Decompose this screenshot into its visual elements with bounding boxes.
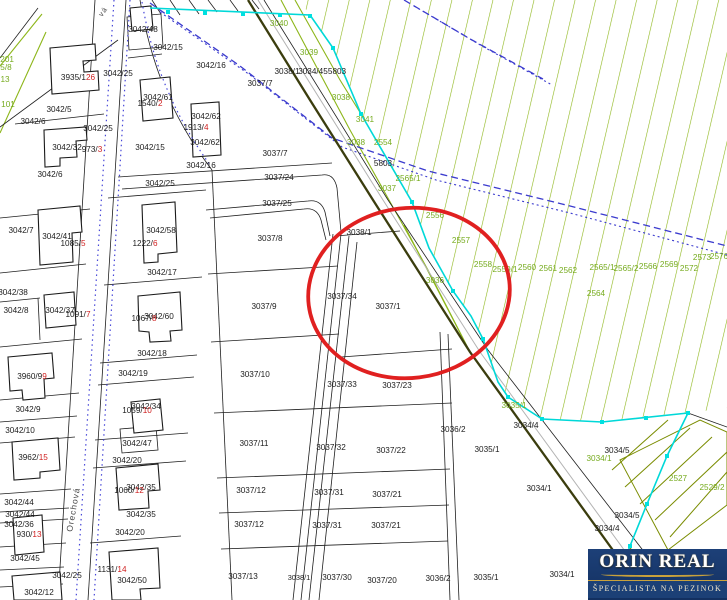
building-number-label: 1060/12 (114, 486, 144, 495)
forest-parcel-label: 2566 (639, 262, 658, 271)
building-number-label: 1131/14 (98, 565, 127, 574)
parcel-label: 3042/36 (4, 520, 34, 529)
parcel-label: 3034/1 (526, 484, 551, 493)
building-number-label: 1067/8 (131, 314, 157, 323)
building-number-label: 3962/15 (18, 453, 48, 462)
forest-parcel-label: 2529/2 (699, 483, 724, 492)
forest-parcel-label: 2565/1 (589, 263, 614, 272)
parcel-label: 3037/12 (236, 486, 266, 495)
parcel-label: 3037/23 (382, 381, 412, 390)
parcel-label: 3037/32 (316, 443, 346, 452)
forest-parcel-label: 2562 (559, 266, 578, 275)
forest-parcel-label: 2560 (518, 263, 537, 272)
parcel-label: 3042/44 (5, 510, 35, 519)
forest-parcel-label: 3036 (426, 276, 445, 285)
parcel-label: 3037/30 (322, 573, 352, 582)
parcel-label: 3042/19 (118, 369, 148, 378)
parcel-label: 3037/33 (327, 380, 357, 389)
parcel-label: 3034/5 (614, 511, 639, 520)
forest-parcel-label: 3040 (270, 19, 289, 28)
forest-parcel-label: 2558 (474, 260, 493, 269)
parcel-label: 3035/1 (473, 573, 498, 582)
parcel-label: 3042/50 (117, 576, 147, 585)
parcel-label: 3037/21 (371, 521, 401, 530)
forest-parcel-label: 2527 (669, 474, 688, 483)
parcel-label: 3042/5 (46, 105, 71, 114)
parcel-label: 3042/44 (4, 498, 34, 507)
logo-title: ORIN REAL (588, 549, 727, 575)
parcel-label: 3042/62 (190, 138, 220, 147)
forest-parcel-label: 2572 (680, 264, 699, 273)
parcel-label: 3042/6 (37, 170, 62, 179)
building-number-label: 1085/5 (60, 239, 86, 248)
parcel-label: 3042/17 (147, 268, 177, 277)
parcel-label: 3042/18 (137, 349, 167, 358)
parcel-label: 3037/11 (240, 439, 269, 448)
parcel-label: 3042/25 (103, 69, 133, 78)
building-number-label: 1091/7 (65, 310, 91, 319)
parcel-label: 3038/1 (288, 573, 311, 582)
forest-parcel-label: 3037 (378, 184, 397, 193)
parcel-label: 3042/9 (15, 405, 40, 414)
parcel-label: 3042/25 (52, 571, 82, 580)
forest-parcel-label: 2554 (374, 138, 393, 147)
parcel-label: 3042/6 (20, 117, 45, 126)
forest-parcel-label: 3039 (300, 48, 319, 57)
building-number-label: 1913/4 (183, 123, 209, 132)
parcel-label: 3042/16 (186, 161, 216, 170)
parcel-label: 3042/12 (24, 588, 54, 597)
building-number-label: 1059/10 (122, 406, 152, 415)
forest-parcel-label: 2565/2 (613, 264, 638, 273)
parcel-label: 3037/22 (376, 446, 406, 455)
parcel-label: 3037/9 (251, 302, 276, 311)
parcel-label: 3037/25 (262, 199, 292, 208)
building-footprints (8, 6, 221, 600)
forest-parcel-label: 5/8 (0, 63, 12, 72)
parcel-label: 3037/10 (240, 370, 270, 379)
parcel-label: 3037/7 (247, 79, 272, 88)
forest-parcel-label: 2576 (710, 252, 727, 261)
parcel-label: 3037/21 (372, 490, 402, 499)
parcel-label: 3034/1 (549, 570, 574, 579)
parcel-label: 3038/1 (274, 67, 299, 76)
forest-parcel-label: 3035/1 (501, 401, 526, 410)
forest-parcel-label: 3041 (356, 115, 375, 124)
building-number-label: 3935/126 (61, 73, 96, 82)
parcel-label: 3034/4 (513, 421, 538, 430)
building-number-label: 973/3 (82, 145, 103, 154)
orinreal-logo: ORIN REAL ŠPECIALISTA NA PEZINOK (588, 549, 727, 600)
building-number-label: 3960/99 (17, 372, 47, 381)
parcel-label: 3042/45 (10, 554, 40, 563)
forest-parcel-label: 13 (0, 75, 10, 84)
parcel-label: 3036/2 (425, 574, 450, 583)
parcel-label: 3037/20 (367, 576, 397, 585)
parcel-label: 3042/25 (145, 179, 175, 188)
forest-parcel-label: 3034/1 (586, 454, 611, 463)
parcel-label: 3036/2 (440, 425, 465, 434)
parcel-label: 3042/32 (52, 143, 82, 152)
parcel-label: 3042/8 (3, 306, 28, 315)
forest-parcel-label: 3038 (332, 93, 351, 102)
forest-parcel-label: 101 (1, 100, 15, 109)
parcel-label: 3037/34 (327, 292, 357, 301)
parcel-label: 3037/12 (234, 520, 264, 529)
parcel-label: 5803 (328, 67, 347, 76)
parcel-label: 3037/7 (262, 149, 287, 158)
parcel-label: 3042/20 (115, 528, 145, 537)
parcel-label: 3037/24 (264, 173, 294, 182)
forest-parcel-label: 3038 (347, 138, 366, 147)
street-name-label: vá (96, 5, 109, 18)
forest-parcel-label: 2561 (539, 264, 558, 273)
parcel-label: 3038/1 (346, 228, 371, 237)
forest-parcel-label: 2557 (452, 236, 471, 245)
parcel-label: 3037/13 (228, 572, 258, 581)
forest-parcel-label: 2565/1 (395, 174, 420, 183)
parcel-label: 3034/45 (298, 67, 328, 76)
building-number-label: 1540/2 (137, 99, 163, 108)
parcel-label: 3035/1 (474, 445, 499, 454)
parcel-label: 3042/62 (191, 112, 221, 121)
parcel-label: 3042/15 (153, 43, 183, 52)
forest-parcel-label: 2573 (693, 253, 712, 262)
parcel-label: 3037/31 (314, 488, 344, 497)
forest-parcel-label: 2569 (660, 260, 679, 269)
logo-subtitle: ŠPECIALISTA NA PEZINOK (588, 580, 727, 598)
cadastral-map[interactable]: 3042/483042/153042/163042/253042/53042/6… (0, 0, 727, 600)
building-number-label: 1222/6 (132, 239, 158, 248)
parcel-label: 3042/58 (146, 226, 176, 235)
building-number-label: 930/13 (16, 530, 41, 539)
parcel-label: 3042/20 (112, 456, 142, 465)
parcel-label: 3037/8 (257, 234, 282, 243)
street-name-label: Orechová (64, 487, 82, 533)
forest-parcel-label: 2564 (587, 289, 606, 298)
parcel-label: 3042/47 (122, 439, 152, 448)
parcel-label: 3034/4 (594, 524, 619, 533)
parcel-label: 3042/35 (126, 510, 156, 519)
parcel-label: 3042/15 (135, 143, 165, 152)
parcel-label: 5803 (374, 159, 393, 168)
parcel-label: 3037/1 (375, 302, 400, 311)
parcel-label: 3037/31 (312, 521, 342, 530)
parcel-label: 3042/10 (5, 426, 35, 435)
parcel-label: 3042/7 (8, 226, 33, 235)
parcel-label: 3042/38 (0, 288, 28, 297)
parcel-label: 3042/48 (128, 25, 158, 34)
cadastral-map-svg: 3042/483042/153042/163042/253042/53042/6… (0, 0, 727, 600)
parcel-label: 3042/25 (83, 124, 113, 133)
parcel-label: 3042/16 (196, 61, 226, 70)
